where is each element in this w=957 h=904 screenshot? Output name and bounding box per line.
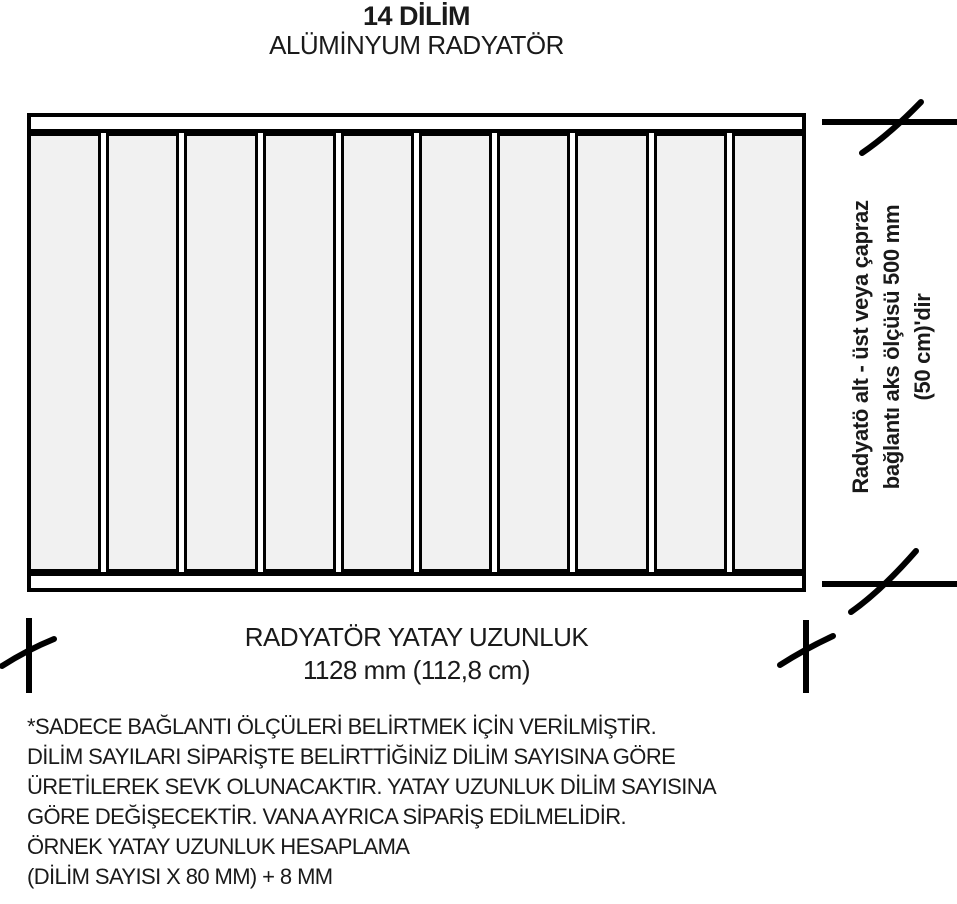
- radiator-diagram: [27, 113, 806, 592]
- radiator-section: [419, 133, 492, 572]
- note-line: *SADECE BAĞLANTI ÖLÇÜLERİ BELİRTMEK İÇİN…: [27, 712, 937, 742]
- radiator-section: [497, 133, 570, 572]
- note-line: GÖRE DEĞİŞECEKTİR. VANA AYRICA SİPARİŞ E…: [27, 802, 937, 832]
- dimension-value: 1128 mm (112,8 cm): [27, 654, 806, 687]
- radiator-top-collector: [27, 113, 806, 133]
- radiator-section: [106, 133, 179, 572]
- radiator-bottom-collector: [27, 572, 806, 592]
- connection-axis-note-line: bağlantı aks ölçüsü 500 mm: [876, 182, 907, 512]
- note-line: ÖRNEK YATAY UZUNLUK HESAPLAMA: [27, 832, 937, 862]
- radiator-sections: [27, 133, 806, 572]
- radiator-section: [654, 133, 727, 572]
- radiator-section: [28, 133, 101, 572]
- radiator-section: [263, 133, 336, 572]
- radiator-section: [184, 133, 257, 572]
- title-block: 14 DİLİM ALÜMİNYUM RADYATÖR: [27, 1, 806, 60]
- notes-block: *SADECE BAĞLANTI ÖLÇÜLERİ BELİRTMEK İÇİN…: [27, 712, 937, 892]
- page-subtitle: ALÜMİNYUM RADYATÖR: [27, 31, 806, 60]
- note-line: DİLİM SAYILARI SİPARİŞTE BELİRTTİĞİNİZ D…: [27, 742, 937, 772]
- note-line: ÜRETİLEREK SEVK OLUNACAKTIR. YATAY UZUNL…: [27, 772, 937, 802]
- radiator-section: [341, 133, 414, 572]
- radiator-section: [732, 133, 805, 572]
- note-line: (DİLİM SAYISI X 80 MM) + 8 MM: [27, 862, 937, 892]
- page-title: 14 DİLİM: [27, 1, 806, 31]
- dimension-label: RADYATÖR YATAY UZUNLUK: [27, 621, 806, 654]
- connection-axis-note-line: (50 cm)'dir: [907, 182, 938, 512]
- connection-axis-note: Radyatö alt - üst veya çapraz bağlantı a…: [845, 182, 939, 512]
- dimension-block: RADYATÖR YATAY UZUNLUK 1128 mm (112,8 cm…: [27, 621, 806, 687]
- radiator-section: [575, 133, 648, 572]
- document-page: 14 DİLİM ALÜMİNYUM RADYATÖR Radyatö alt …: [0, 0, 957, 904]
- connection-axis-note-line: Radyatö alt - üst veya çapraz: [845, 182, 876, 512]
- break-mark-top-right-horizontal-icon: [815, 90, 957, 165]
